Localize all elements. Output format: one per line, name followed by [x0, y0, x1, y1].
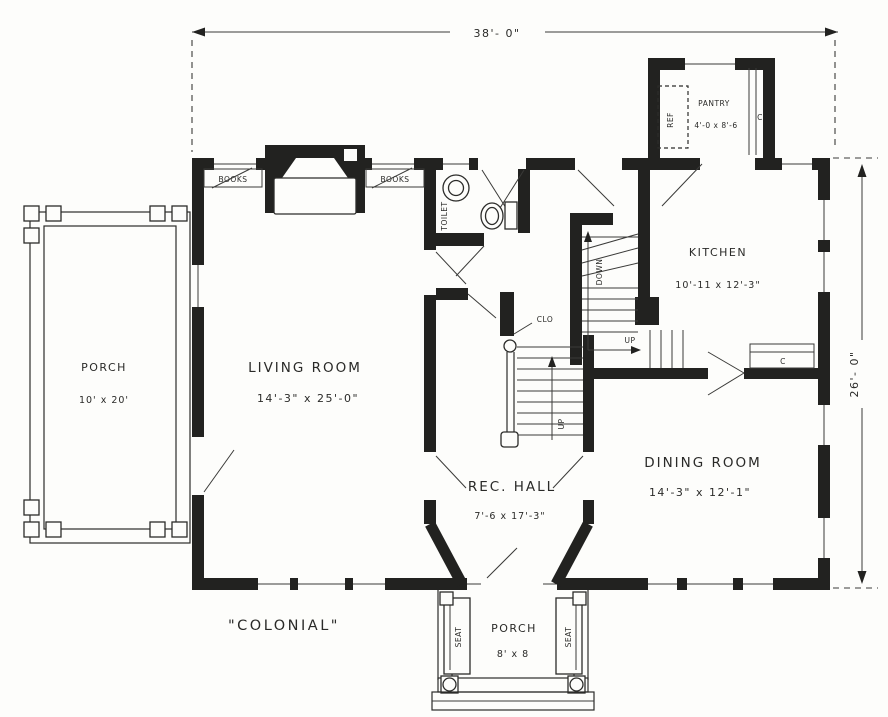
books-left-label: BOOKS	[219, 175, 248, 184]
living-room-size: 14'-3" x 25'-0"	[257, 392, 359, 405]
back-stairs-up-label: UP	[624, 336, 635, 345]
fireplace	[265, 145, 365, 214]
floor-plan-drawing: 38'- 0" 26'- 0" PORCH 10' x 20'	[0, 0, 888, 717]
closet: CLO	[514, 315, 553, 334]
bookcase-left: BOOKS	[204, 168, 262, 188]
style-title: "COLONIAL"	[228, 618, 340, 634]
kitchen-cabinet: C	[750, 344, 814, 368]
front-porch: SEAT SEAT PORCH 8' x 8	[432, 590, 594, 710]
back-stairs: DOWN UP	[582, 231, 683, 368]
pantry-label: PANTRY	[698, 99, 730, 108]
dining-room-label: DINING ROOM	[644, 455, 762, 471]
toilet-room: TOILET	[440, 175, 517, 232]
bookcase-right: BOOKS	[366, 168, 424, 188]
pantry-cupboard-label: C	[757, 113, 763, 122]
dimension-right: 26'- 0"	[833, 158, 878, 588]
refrigerator-label: REF	[666, 112, 675, 128]
dimension-depth-label: 26'- 0"	[848, 350, 861, 397]
side-porch-size: 10' x 20'	[79, 395, 129, 406]
pantry-size: 4'-0 x 8'-6	[694, 121, 737, 130]
main-stairs-up-label: UP	[557, 418, 566, 429]
closet-label: CLO	[537, 315, 554, 324]
side-porch: PORCH 10' x 20'	[24, 206, 190, 543]
toilet-label: TOILET	[440, 201, 449, 231]
floor-plan-sheet: 38'- 0" 26'- 0" PORCH 10' x 20'	[0, 0, 888, 717]
living-room-label: LIVING ROOM	[248, 360, 362, 376]
rec-hall-size: 7'-6 x 17'-3"	[474, 511, 545, 522]
books-right-label: BOOKS	[381, 175, 410, 184]
dining-room-size: 14'-3" x 12'-1"	[649, 486, 751, 499]
newel-post-top	[504, 340, 516, 352]
kitchen-label: KITCHEN	[689, 246, 747, 259]
dimension-top: 38'- 0"	[192, 27, 838, 152]
dimension-width-label: 38'- 0"	[473, 27, 520, 40]
room-labels: LIVING ROOM 14'-3" x 25'-0" KITCHEN 10'-…	[228, 246, 762, 634]
back-stairs-down-label: DOWN	[595, 259, 604, 286]
side-porch-label: PORCH	[81, 361, 127, 374]
rec-hall-label: REC. HALL	[468, 479, 556, 495]
kitchen-cabinet-label: C	[780, 357, 786, 366]
newel-post-bottom	[501, 432, 518, 447]
pantry: REF C PANTRY 4'-0 x 8'-6	[658, 68, 763, 155]
kitchen-size: 10'-11 x 12'-3"	[675, 280, 760, 291]
seat-left-label: SEAT	[454, 627, 463, 648]
front-porch-label: PORCH	[491, 622, 537, 635]
front-porch-size: 8' x 8	[497, 649, 529, 660]
seat-right-label: SEAT	[564, 627, 573, 648]
